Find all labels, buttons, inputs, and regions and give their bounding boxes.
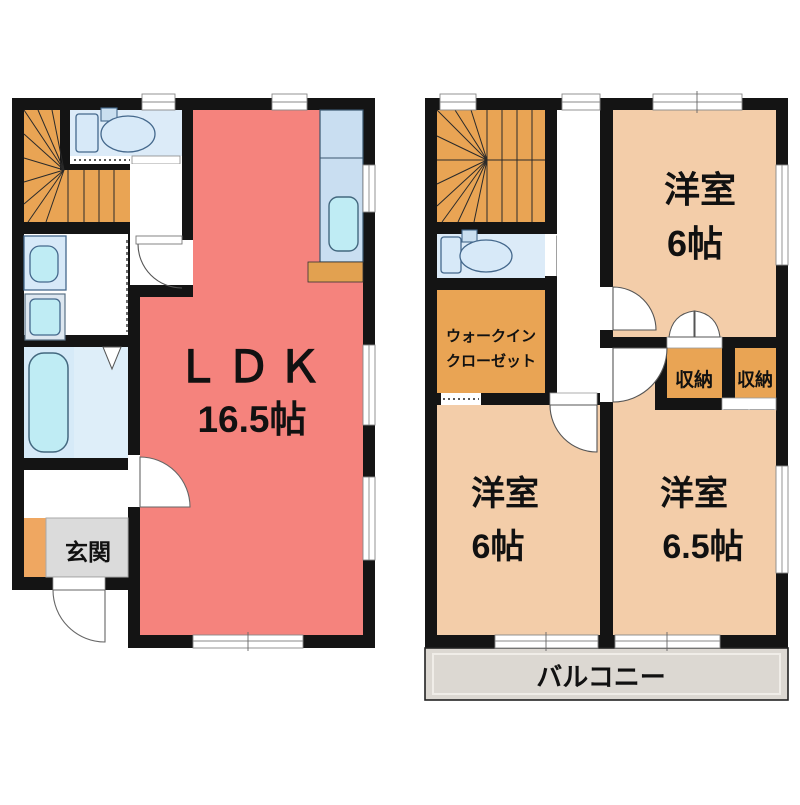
entrance-label: 玄関 [65, 539, 111, 565]
front-door-gap [53, 577, 105, 590]
door-gap-room-bottom-left [550, 393, 597, 405]
western-room-6-bottom-area: 6帖 [472, 528, 525, 566]
floor-plan-1f: 玄関 ＬＤＫ 16.5帖 [12, 94, 375, 651]
ldk-label: ＬＤＫ [176, 343, 329, 392]
floorplan-page: 玄関 ＬＤＫ 16.5帖 [0, 0, 800, 800]
door-gap-room-bottom-right [600, 348, 613, 402]
western-room-6-bottom-label: 洋室 [471, 474, 539, 513]
bathtub-icon [29, 353, 68, 452]
door-gap-room-top [600, 287, 613, 330]
western-room-6-5-label: 洋室 [660, 474, 728, 513]
balcony-label: バルコニー [536, 662, 665, 692]
door-gap-hall-ldk-lower [128, 455, 140, 507]
kitchen-counter-end [308, 262, 363, 282]
western-room-6-5-area: 6.5帖 [662, 528, 743, 566]
toilet-door-gap-2f [545, 234, 557, 276]
kitchen-sink-icon [329, 197, 358, 251]
door-gap-hall-ldk-upper [182, 240, 193, 285]
storage-right-label: 収納 [737, 369, 773, 390]
balcony: バルコニー [425, 648, 788, 700]
ldk-area-label: 16.5帖 [197, 399, 306, 440]
western-room-6-top-area: 6帖 [667, 223, 723, 264]
floor-plan-2f: ウォークイン クローゼット 洋室 6帖 収納 収納 洋室 6帖 [425, 91, 788, 700]
sink-icon [24, 236, 66, 290]
door-leaf-hall-ldk-upper [136, 236, 182, 244]
western-room-6-top-label: 洋室 [664, 169, 736, 210]
entrance-step [24, 518, 46, 577]
washing-machine-icon [25, 294, 65, 340]
hall-upper-1f [130, 164, 182, 285]
bathroom-floor-panel [74, 347, 128, 458]
walk-in-closet-label-line2: クローゼット [446, 352, 536, 370]
floorplan-canvas: 玄関 ＬＤＫ 16.5帖 [0, 0, 800, 800]
storage-left-label: 収納 [675, 368, 713, 391]
walk-in-closet-label-line1: ウォークイン [446, 328, 536, 345]
toilet-sliding-door-1f [132, 156, 180, 164]
hallway-2f [557, 110, 600, 393]
hall-lower-1f [24, 470, 128, 518]
